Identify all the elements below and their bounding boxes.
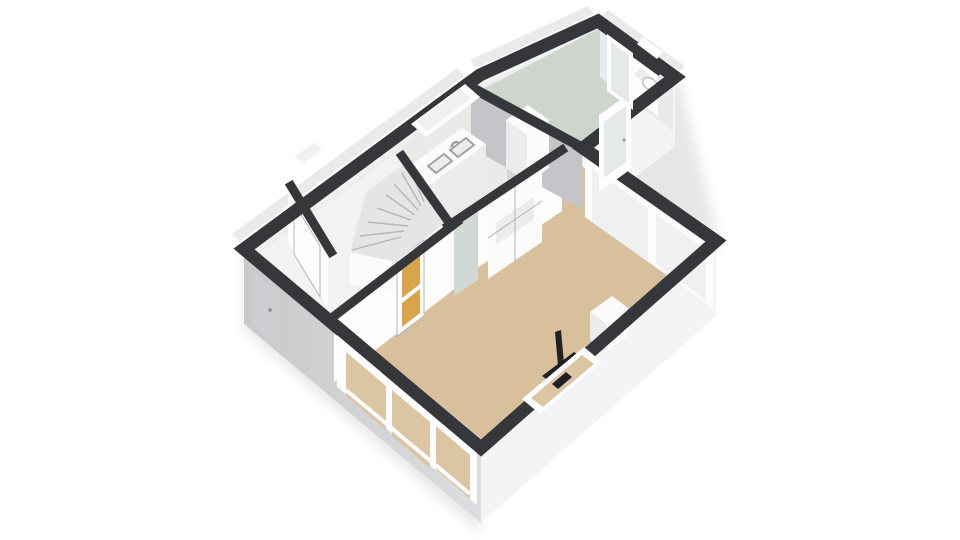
frosted-door-handle	[622, 138, 625, 141]
floorplan-3d-view	[0, 0, 960, 540]
floorplan-canvas	[0, 0, 960, 540]
hall-window	[290, 138, 329, 169]
front-door-handle	[268, 308, 272, 312]
